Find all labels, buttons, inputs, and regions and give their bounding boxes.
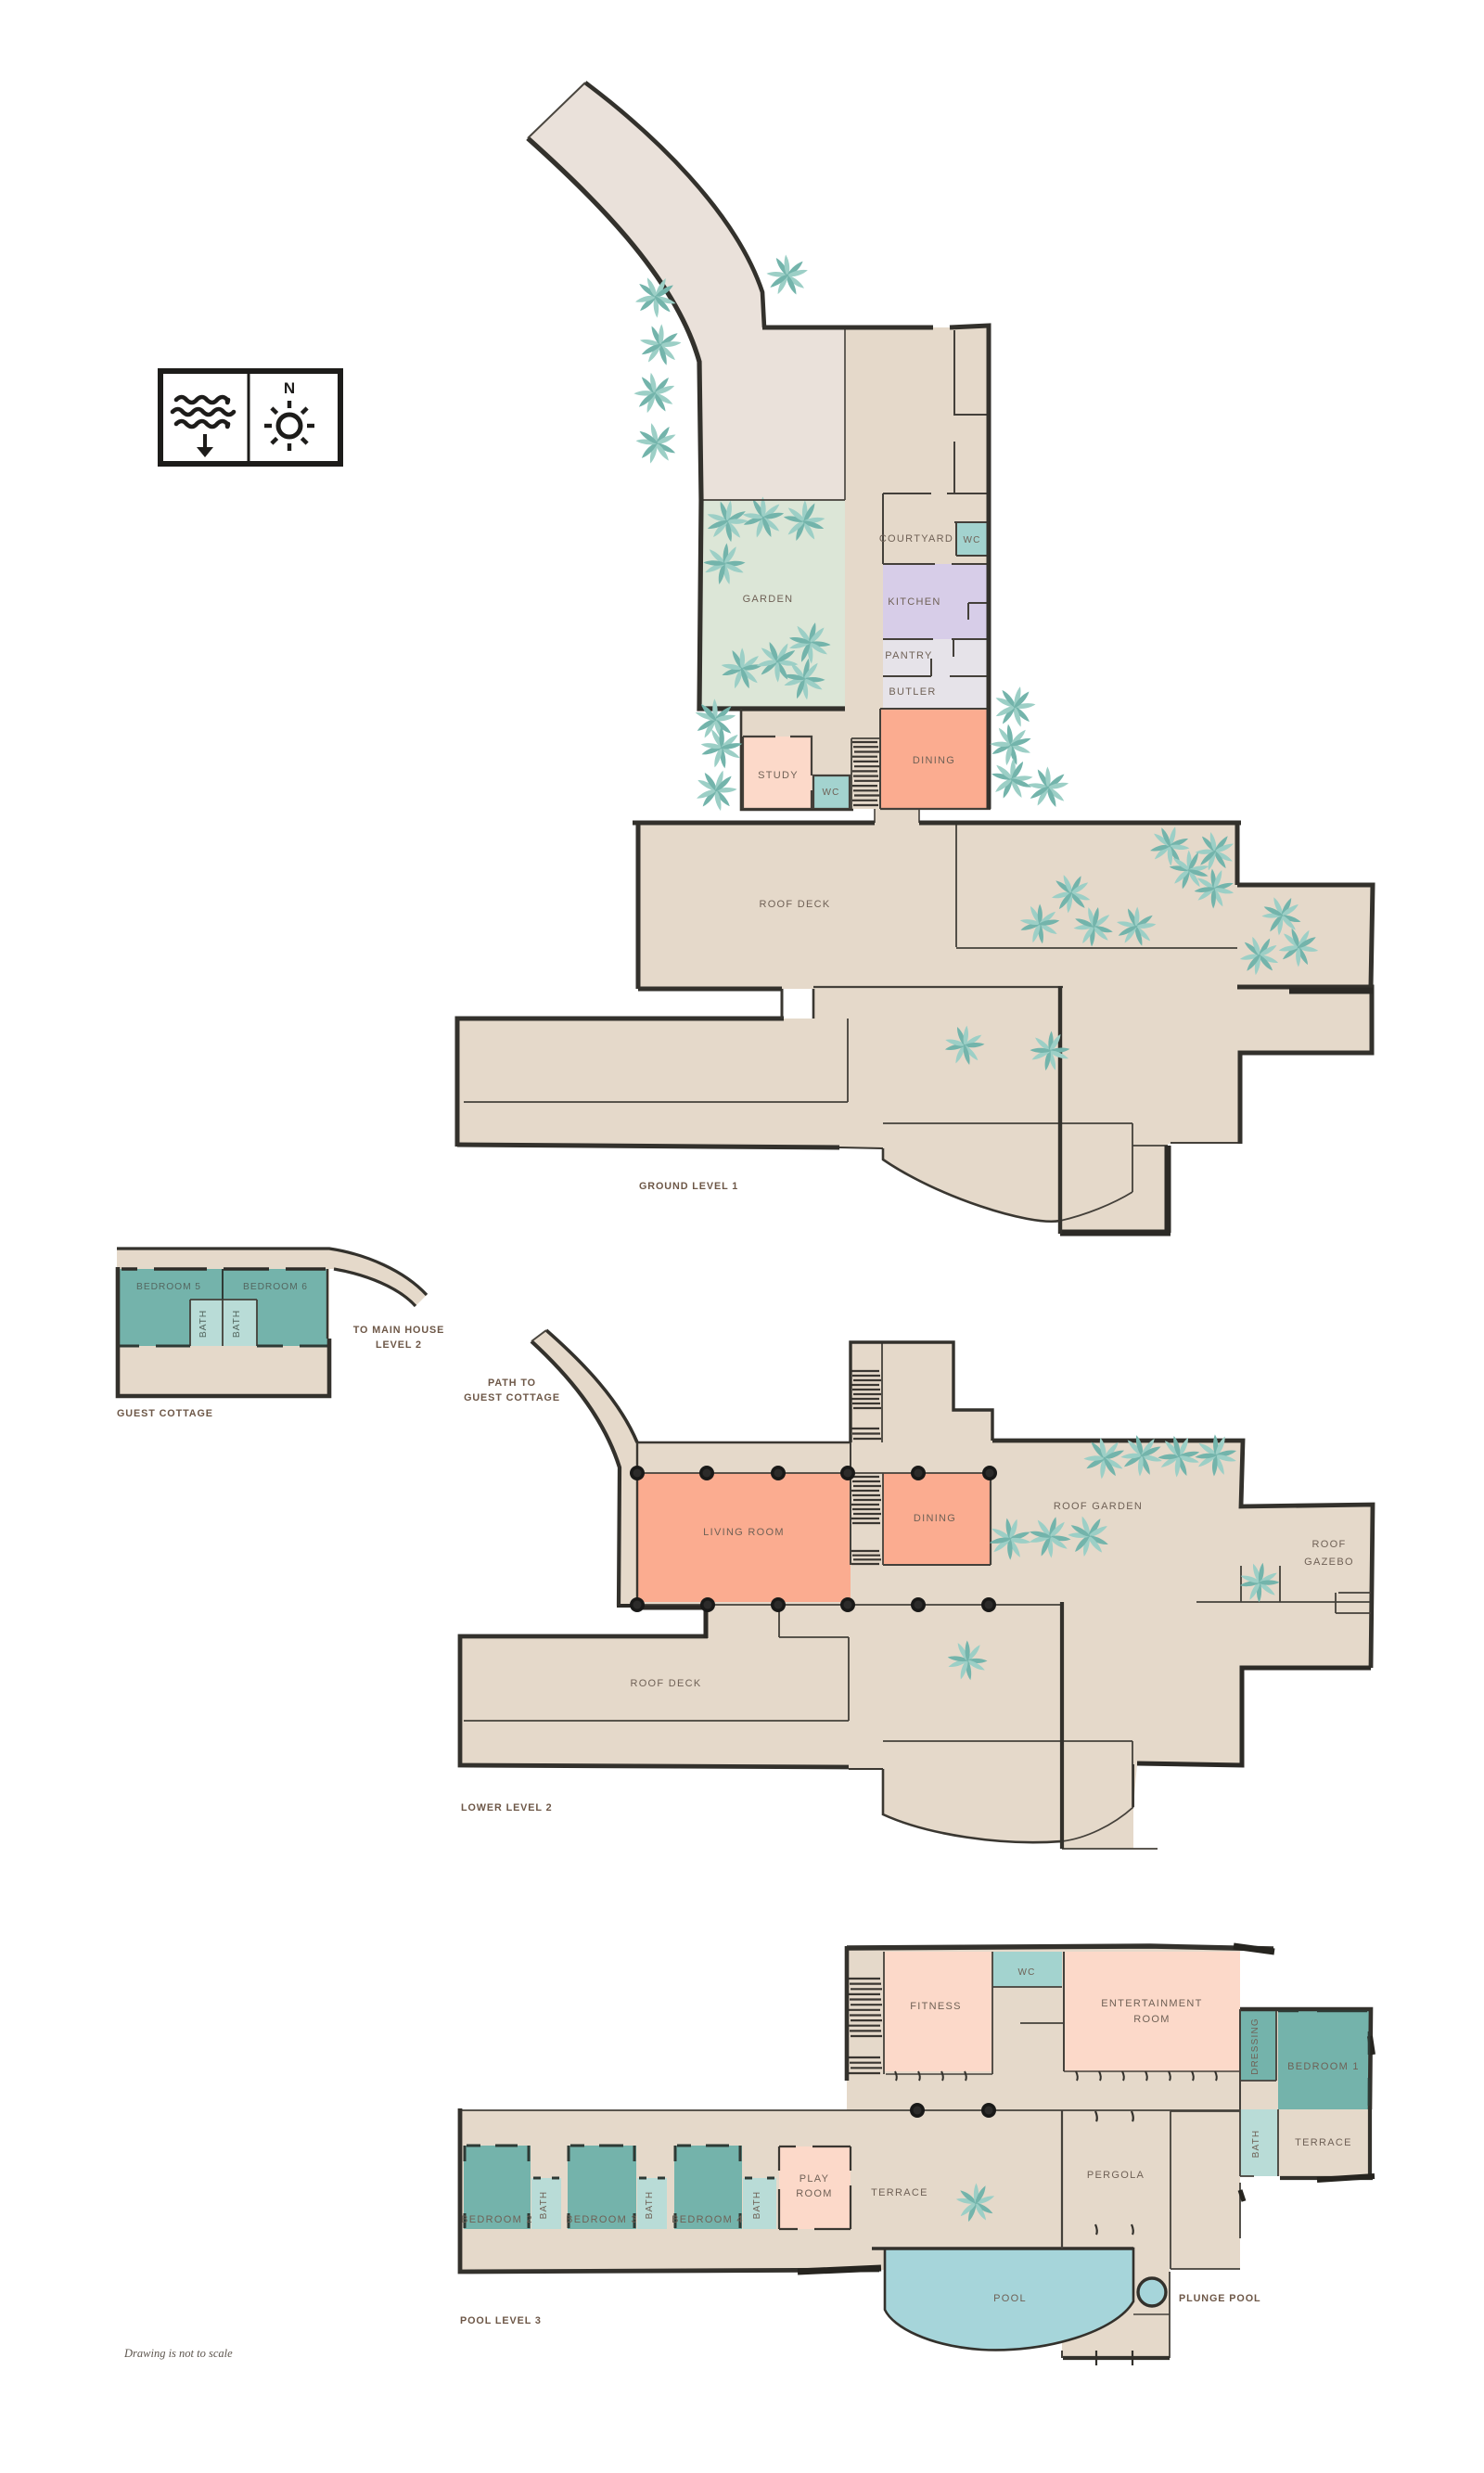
svg-text:BATH: BATH <box>1251 2130 1261 2159</box>
svg-text:PLUNGE POOL: PLUNGE POOL <box>1179 2293 1260 2304</box>
svg-text:BATH: BATH <box>752 2191 762 2220</box>
svg-text:BATH: BATH <box>539 2191 549 2220</box>
svg-text:GUEST COTTAGE: GUEST COTTAGE <box>464 1392 560 1403</box>
svg-text:GUEST COTTAGE: GUEST COTTAGE <box>117 1408 213 1419</box>
svg-text:BEDROOM 4: BEDROOM 4 <box>672 2214 744 2225</box>
svg-text:ROOF GARDEN: ROOF GARDEN <box>1054 1501 1143 1512</box>
svg-text:BATH: BATH <box>198 1310 209 1338</box>
svg-text:LIVING ROOM: LIVING ROOM <box>703 1527 785 1538</box>
svg-text:BEDROOM 3: BEDROOM 3 <box>566 2214 638 2225</box>
svg-text:PERGOLA: PERGOLA <box>1087 2170 1145 2181</box>
svg-text:TO MAIN HOUSE: TO MAIN HOUSE <box>353 1325 444 1336</box>
svg-text:ROOM: ROOM <box>1133 2014 1170 2025</box>
svg-text:GARDEN: GARDEN <box>743 594 794 605</box>
svg-text:ROOF DECK: ROOF DECK <box>630 1678 701 1689</box>
svg-text:BUTLER: BUTLER <box>889 686 936 698</box>
svg-text:PATH TO: PATH TO <box>488 1377 536 1389</box>
svg-text:COURTYARD: COURTYARD <box>879 533 953 545</box>
svg-text:BEDROOM 2: BEDROOM 2 <box>461 2214 533 2225</box>
svg-text:KITCHEN: KITCHEN <box>888 596 940 608</box>
svg-text:GAZEBO: GAZEBO <box>1304 1557 1354 1568</box>
svg-text:BEDROOM 6: BEDROOM 6 <box>243 1282 308 1292</box>
svg-text:BATH: BATH <box>232 1310 242 1338</box>
svg-text:Drawing is not to scale: Drawing is not to scale <box>123 2347 233 2360</box>
svg-text:BATH: BATH <box>645 2191 655 2220</box>
svg-text:ROOM: ROOM <box>796 2188 832 2199</box>
svg-text:TERRACE: TERRACE <box>1295 2137 1352 2148</box>
svg-text:BEDROOM 1: BEDROOM 1 <box>1287 2061 1360 2072</box>
svg-text:TERRACE: TERRACE <box>871 2187 928 2198</box>
svg-text:DINING: DINING <box>913 755 955 766</box>
svg-text:DRESSING: DRESSING <box>1250 2018 1260 2075</box>
svg-text:PLAY: PLAY <box>800 2173 830 2185</box>
svg-text:LOWER LEVEL 2: LOWER LEVEL 2 <box>461 1802 553 1813</box>
svg-text:FITNESS: FITNESS <box>910 2001 962 2012</box>
svg-text:N: N <box>284 379 295 397</box>
svg-text:GROUND LEVEL 1: GROUND LEVEL 1 <box>639 1181 738 1192</box>
svg-text:POOL LEVEL 3: POOL LEVEL 3 <box>460 2315 542 2326</box>
svg-text:ENTERTAINMENT: ENTERTAINMENT <box>1101 1998 1202 2009</box>
svg-text:ROOF: ROOF <box>1312 1539 1347 1550</box>
svg-text:LEVEL 2: LEVEL 2 <box>376 1339 422 1351</box>
svg-text:PANTRY: PANTRY <box>885 650 932 661</box>
svg-text:WC: WC <box>822 788 839 798</box>
svg-text:DINING: DINING <box>914 1513 956 1524</box>
svg-text:WC: WC <box>1017 1967 1035 1978</box>
svg-text:WC: WC <box>963 535 980 545</box>
svg-text:STUDY: STUDY <box>758 770 799 781</box>
svg-text:POOL: POOL <box>993 2293 1027 2304</box>
svg-text:BEDROOM 5: BEDROOM 5 <box>136 1282 201 1292</box>
svg-text:ROOF DECK: ROOF DECK <box>759 899 830 910</box>
